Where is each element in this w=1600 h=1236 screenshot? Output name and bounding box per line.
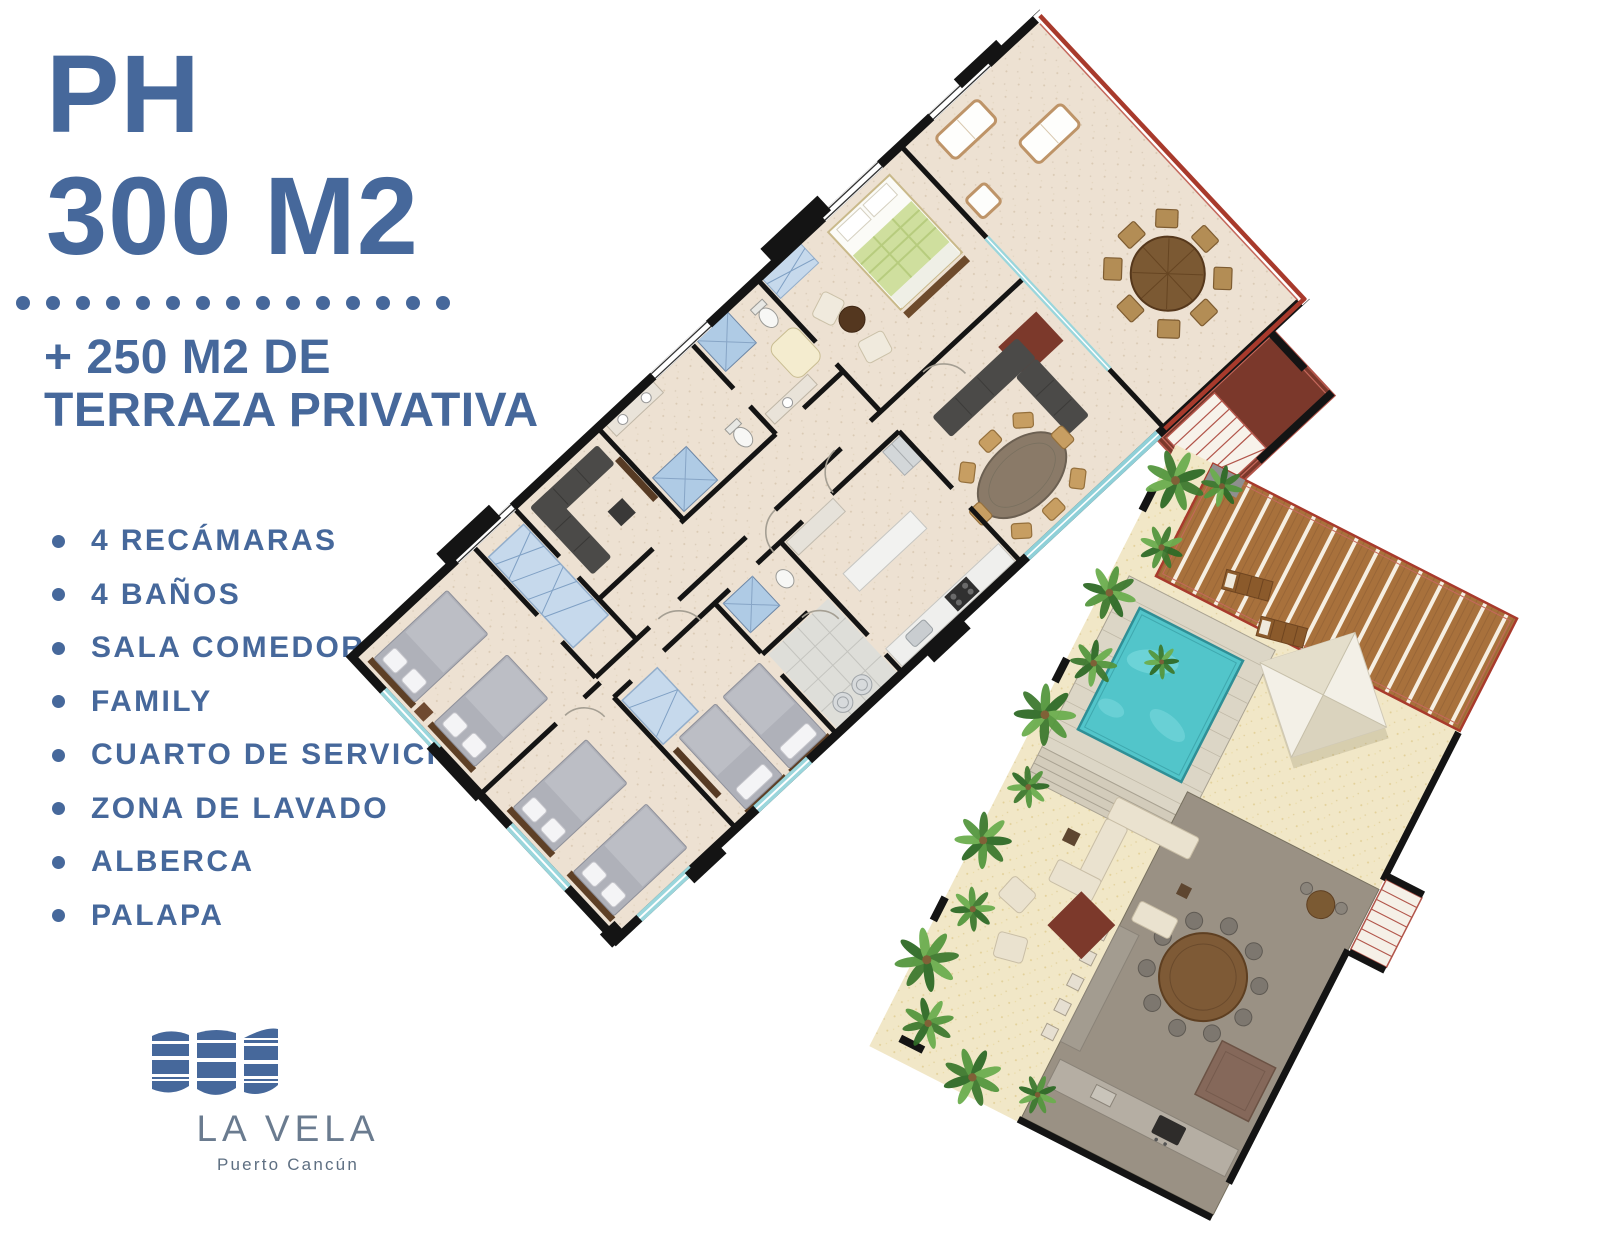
separator-dot: [16, 296, 30, 310]
separator-dot: [166, 296, 180, 310]
bullet-icon: [52, 642, 65, 655]
bullet-icon: [52, 588, 65, 601]
separator-dot: [256, 296, 270, 310]
logo-name: LA VELA: [150, 1108, 426, 1150]
bullet-icon: [52, 749, 65, 762]
subtitle-line2: TERRAZA PRIVATIVA: [44, 384, 539, 437]
list-item: ZONA DE LAVADO: [52, 792, 463, 826]
subtitle-line1: + 250 M2 DE: [44, 331, 539, 384]
feature-label: 4 BAÑOS: [91, 578, 241, 612]
bullet-icon: [52, 535, 65, 548]
feature-label: CUARTO DE SERVICIO: [91, 738, 463, 772]
list-item: CUARTO DE SERVICIO: [52, 738, 463, 772]
separator-dot: [376, 296, 390, 310]
logo-sails-icon: [150, 1026, 280, 1100]
dotted-separator: [16, 296, 450, 310]
feature-label: SALA COMEDOR: [91, 631, 365, 665]
logo-subtitle: Puerto Cancún: [150, 1155, 426, 1175]
separator-dot: [316, 296, 330, 310]
feature-label: 4 RECÁMARAS: [91, 524, 337, 558]
separator-dot: [76, 296, 90, 310]
list-item: ALBERCA: [52, 845, 463, 879]
title-line2: 300 M2: [46, 155, 419, 278]
separator-dot: [196, 296, 210, 310]
subtitle: + 250 M2 DE TERRAZA PRIVATIVA: [44, 331, 539, 437]
separator-dot: [136, 296, 150, 310]
title-line1: PH: [46, 33, 201, 156]
separator-dot: [436, 296, 450, 310]
separator-dot: [106, 296, 120, 310]
separator-dot: [346, 296, 360, 310]
feature-label: PALAPA: [91, 899, 224, 933]
separator-dot: [226, 296, 240, 310]
bullet-icon: [52, 856, 65, 869]
flyer-canvas: PH 300 M2 + 250 M2 DE TERRAZA PRIVATIVA …: [0, 0, 1600, 1236]
list-item: 4 RECÁMARAS: [52, 524, 463, 558]
separator-dot: [406, 296, 420, 310]
bullet-icon: [52, 802, 65, 815]
feature-label: ALBERCA: [91, 845, 254, 879]
list-item: PALAPA: [52, 899, 463, 933]
page-title: PH 300 M2: [46, 34, 419, 278]
brand-logo: LA VELA Puerto Cancún: [150, 1026, 426, 1175]
feature-label: ZONA DE LAVADO: [91, 792, 389, 826]
feature-label: FAMILY: [91, 685, 213, 719]
bullet-icon: [52, 909, 65, 922]
separator-dot: [286, 296, 300, 310]
bullet-icon: [52, 695, 65, 708]
separator-dot: [46, 296, 60, 310]
